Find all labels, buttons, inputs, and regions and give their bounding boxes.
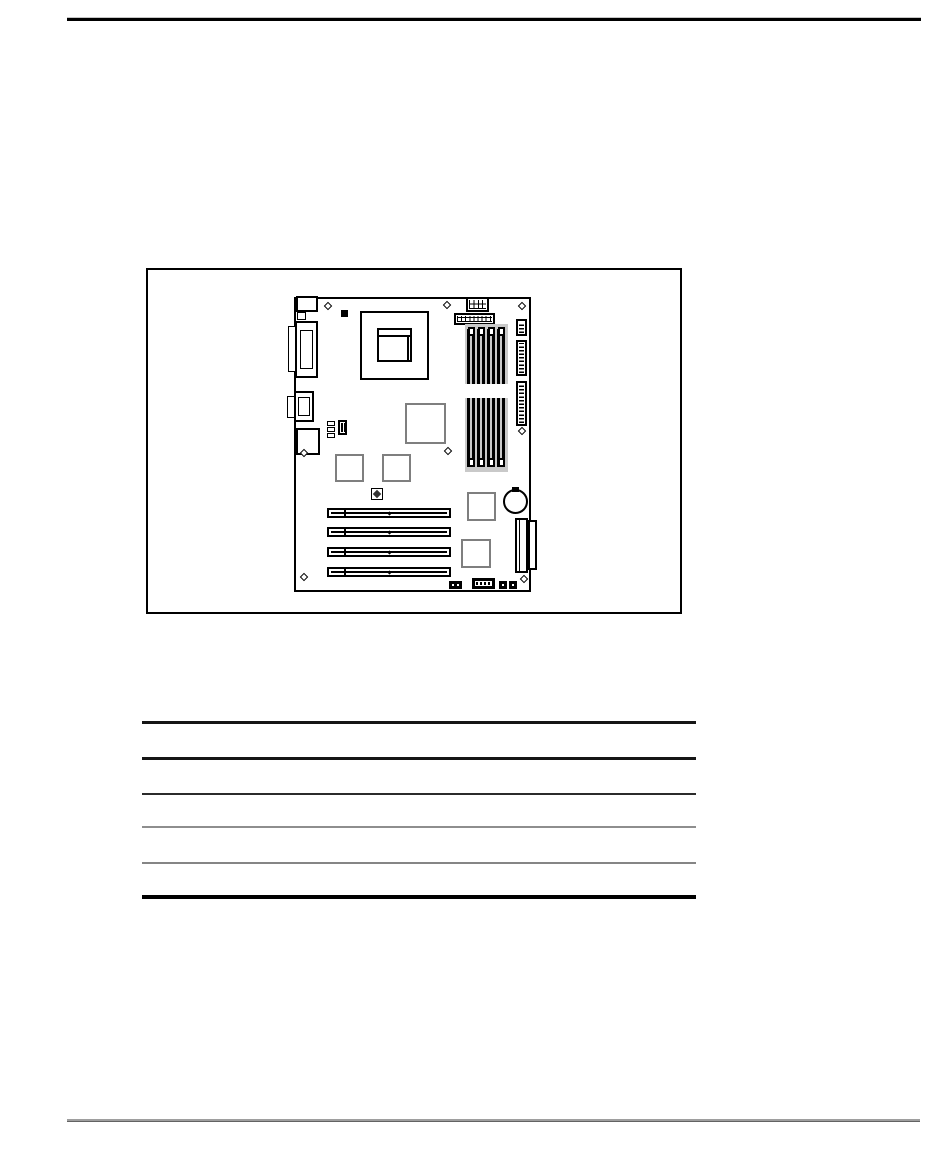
- dimm-latch: [468, 458, 475, 467]
- dimm-slot-bar: [487, 329, 490, 467]
- dimm-latch: [478, 327, 485, 336]
- cpu-socket-right-line: [407, 335, 409, 362]
- table-rule-4: [142, 826, 696, 828]
- dimm-slot-bar: [482, 329, 485, 467]
- footer-rule: [67, 1119, 920, 1122]
- pci-slot-4: [327, 567, 451, 577]
- jumper-pin: [327, 421, 335, 426]
- header-pin: [452, 584, 454, 586]
- jumper-block-2: [338, 420, 347, 435]
- pci-slot-key: [344, 569, 346, 575]
- table-rule-3: [142, 793, 696, 795]
- aux-power-connector: [466, 297, 489, 312]
- main-power-pins: [457, 316, 492, 322]
- header-pin: [457, 584, 459, 586]
- ide-primary-pins: [519, 343, 524, 373]
- pci-slot-center-mark: [387, 511, 391, 515]
- floppy-connector: [516, 319, 527, 336]
- dimm-latch: [468, 327, 475, 336]
- front-panel-header-2: [472, 578, 495, 589]
- front-panel-header-3: [499, 581, 517, 589]
- keyboard-connector-sub: [297, 312, 306, 320]
- header-pins: [476, 582, 491, 585]
- table-rule-5: [142, 862, 696, 864]
- jumper-block-1: [327, 421, 335, 437]
- chip-square-3: [467, 492, 496, 521]
- pci-slot-key: [344, 529, 346, 535]
- header-pin: [512, 584, 514, 586]
- dimm-latch: [498, 458, 505, 467]
- pci-slot-key: [344, 510, 346, 516]
- parallel-port-inner: [300, 330, 313, 369]
- jumper-bar: [341, 423, 343, 432]
- jumper-pin: [327, 433, 335, 438]
- fan-header: [341, 310, 348, 317]
- manual-page: [0, 0, 950, 1172]
- configuration-jumper: [371, 488, 383, 500]
- serial-port-inner: [298, 397, 310, 416]
- chip-square-4: [461, 539, 491, 568]
- figure-frame: [146, 268, 682, 614]
- chip-square-1: [335, 454, 364, 482]
- floppy-connector-pins: [519, 322, 524, 333]
- table-rule-1: [142, 721, 696, 724]
- pci-slot-key: [344, 549, 346, 555]
- jumper-pin: [327, 427, 335, 432]
- dimm-latch: [478, 458, 485, 467]
- table-rule-2: [142, 757, 696, 760]
- pci-slot-2: [327, 527, 451, 537]
- keyboard-mouse-connector: [296, 296, 318, 312]
- battery-clip: [512, 487, 519, 492]
- front-panel-header-1: [449, 581, 462, 589]
- pci-slot-center-mark: [387, 570, 391, 574]
- dimm-slot-bar: [467, 329, 470, 467]
- riser-edge-connector: [515, 518, 528, 573]
- riser-edge-connector-line: [519, 520, 520, 571]
- pci-slot-1: [327, 508, 451, 518]
- dimm-slot-bar: [502, 329, 505, 467]
- pci-slot-3: [327, 547, 451, 557]
- pci-slot-center-mark: [387, 530, 391, 534]
- dimm-slot-bar: [492, 329, 495, 467]
- table-rule-6: [142, 895, 696, 899]
- ide-connector-secondary: [516, 381, 527, 426]
- battery: [503, 489, 528, 514]
- chip-square-2: [382, 454, 411, 482]
- dimm-slot-bar: [472, 329, 475, 467]
- dimm-latch: [498, 327, 505, 336]
- dimm-latch: [488, 458, 495, 467]
- riser-edge-connector-tab: [528, 520, 537, 570]
- configuration-jumper-diamond: [373, 490, 381, 498]
- dimm-latch: [488, 327, 495, 336]
- north-bridge-chip: [405, 403, 446, 444]
- ide-secondary-pins: [519, 384, 524, 423]
- dimm-slot-bar: [477, 329, 480, 467]
- dimm-slot-bar: [497, 329, 500, 467]
- audio-game-connector: [296, 428, 320, 455]
- header-pin: [502, 584, 504, 586]
- pci-slot-center-mark: [387, 550, 391, 554]
- dimm-key-band: [464, 384, 509, 398]
- jumper-bar: [344, 423, 346, 432]
- aux-power-pins: [469, 300, 486, 309]
- ide-connector-primary: [516, 340, 527, 376]
- header-rule: [67, 17, 921, 21]
